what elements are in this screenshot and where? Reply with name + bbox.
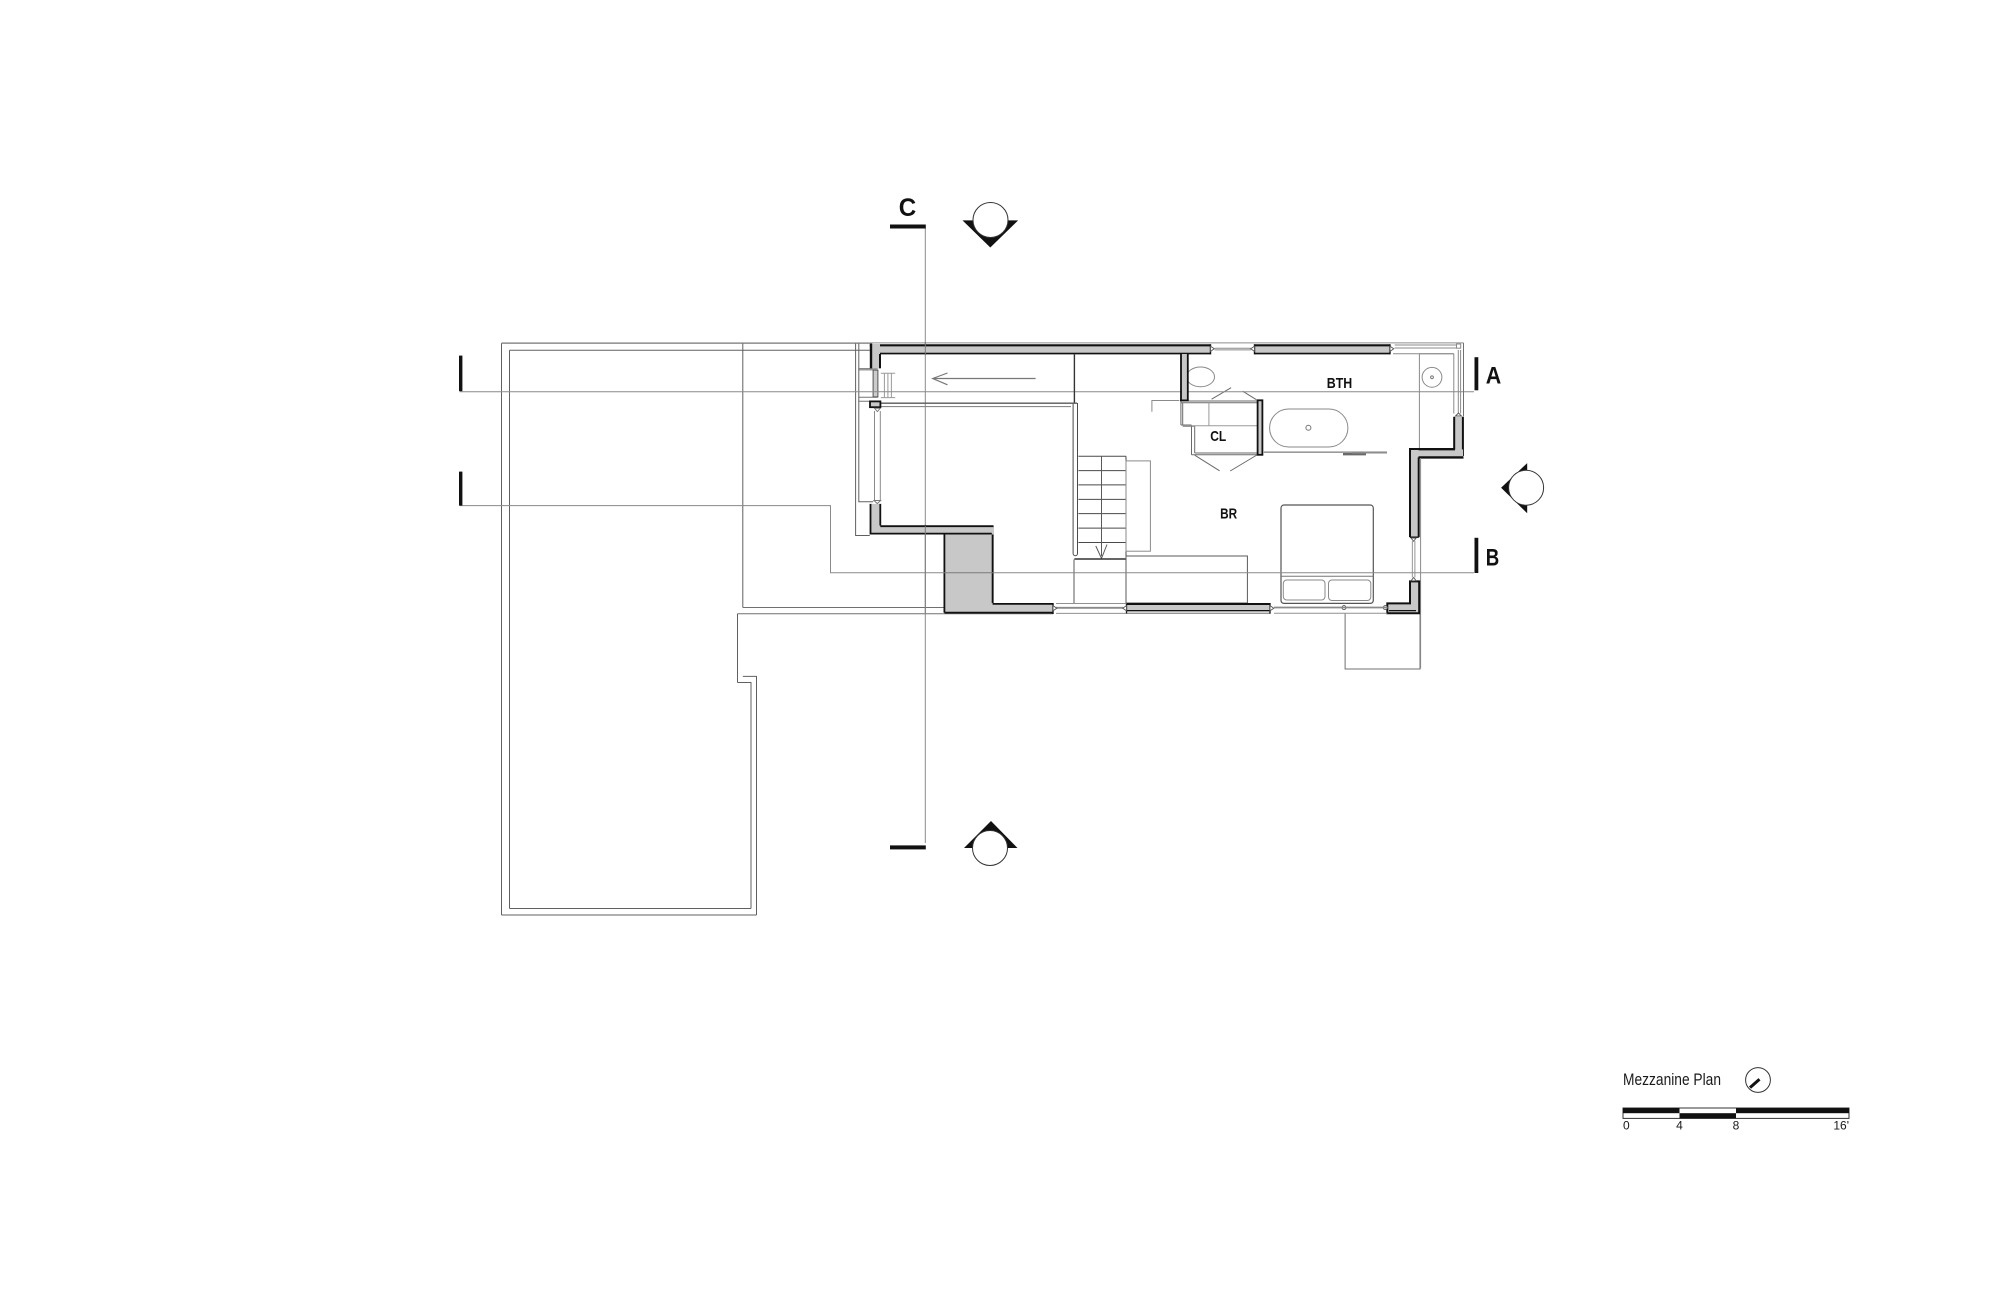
svg-text:Mezzanine Plan: Mezzanine Plan xyxy=(1623,1071,1721,1089)
svg-text:16': 16' xyxy=(1833,1119,1849,1133)
svg-text:8: 8 xyxy=(1733,1119,1740,1133)
svg-text:CL: CL xyxy=(1210,428,1226,445)
svg-text:C: C xyxy=(899,194,917,222)
svg-text:BR: BR xyxy=(1220,506,1237,523)
svg-text:B: B xyxy=(1486,545,1500,572)
svg-text:4: 4 xyxy=(1676,1119,1683,1133)
svg-text:BTH: BTH xyxy=(1327,376,1353,392)
svg-text:0: 0 xyxy=(1623,1119,1630,1133)
svg-text:A: A xyxy=(1486,363,1502,390)
